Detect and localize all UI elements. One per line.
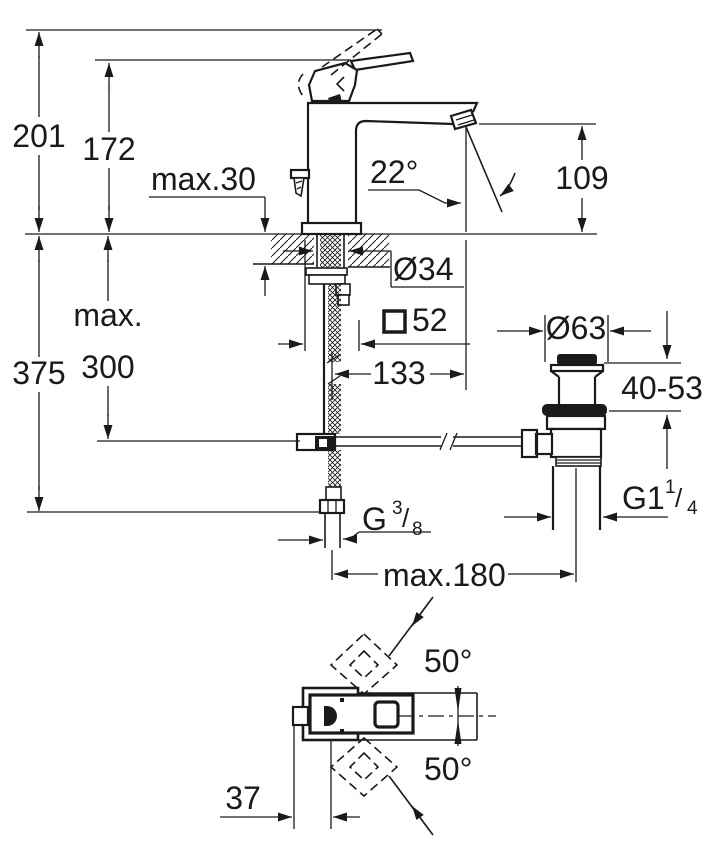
- threaded-shank: [320, 234, 341, 268]
- dim-waste-thread-slash: /: [675, 483, 683, 513]
- waste-thread-section: [556, 457, 601, 466]
- dim-supply-thread: G 3 / 8: [278, 498, 431, 540]
- dim-max-center-distance-label: max.180: [383, 557, 506, 593]
- top-view-pull-knob: [293, 707, 308, 725]
- top-view-aerator: [375, 702, 398, 727]
- dim-waste-flange-label: Ø63: [546, 310, 606, 346]
- dim-spout-height-label: 109: [555, 160, 608, 196]
- pop-up-waste-valve: [522, 354, 607, 582]
- pop-up-linkage-rod: [297, 433, 522, 450]
- water-stream: [466, 127, 515, 232]
- dim-swing-upper-label: 50°: [424, 643, 472, 679]
- dim-spout-angle-label: 22°: [370, 154, 418, 190]
- dim-swing-upper: 50°: [389, 597, 472, 679]
- dim-swing-lower-label: 50°: [424, 751, 472, 787]
- dim-lever-height-label: 172: [82, 131, 135, 167]
- side-view: 201 172 max.30 375: [12, 29, 703, 593]
- supply-hose-nut: [320, 500, 344, 513]
- dim-supply-thread-sup: 3: [392, 498, 403, 519]
- supply-hose-end: [328, 450, 341, 487]
- dim-deck-thickness-label: max.30: [151, 161, 256, 197]
- dim-waste-thread-sup: 1: [665, 477, 676, 498]
- supply-hose-upper: [328, 284, 341, 362]
- dim-deck-thickness: max.30: [149, 161, 265, 296]
- mounting-washer: [306, 268, 347, 275]
- dim-clamp-range: 40-53: [604, 311, 703, 469]
- top-view: 50° 50° 37: [220, 597, 496, 835]
- dim-supply-thread-prefix: G: [362, 501, 387, 537]
- mounting-nut: [309, 275, 345, 284]
- dim-hose-max-value: 300: [81, 349, 134, 385]
- dim-spout-reach-label: 133: [372, 355, 425, 391]
- dim-hose-max-word: max.: [73, 297, 142, 333]
- dim-waste-thread-prefix: G1: [622, 480, 665, 516]
- dim-total-height-label: 201: [12, 118, 65, 154]
- faucet-dimension-drawing: 201 172 max.30 375: [0, 0, 717, 857]
- dim-supply-length: 375: [12, 236, 320, 512]
- dim-spout-angle: 22°: [368, 154, 461, 203]
- dim-waste-thread-sub: 4: [687, 498, 698, 519]
- dim-swing-lower: 50°: [389, 751, 472, 835]
- dim-max-center-distance: max.180: [334, 557, 574, 593]
- waste-plug-cap: [557, 354, 597, 365]
- dim-body-square-label: 52: [412, 302, 448, 338]
- dim-hose-max-depth: max. 300: [73, 236, 300, 441]
- dim-clamp-range-label: 40-53: [621, 370, 703, 406]
- supply-hose-lower: [328, 384, 341, 434]
- dim-spout-height: 109: [479, 124, 609, 232]
- dim-supply-length-label: 375: [12, 355, 65, 391]
- dim-back-to-center-label: 37: [225, 780, 261, 816]
- rod-clamp-knob: [522, 430, 537, 457]
- dim-supply-thread-slash: /: [402, 503, 410, 533]
- dim-hole-diameter-label: Ø34: [393, 251, 453, 287]
- square-symbol: [384, 311, 405, 332]
- waste-gasket: [542, 404, 607, 416]
- pull-rod-knob: [291, 170, 309, 196]
- top-view-faucet: [293, 688, 496, 740]
- dim-supply-thread-sub: 8: [412, 519, 423, 540]
- base-plate: [302, 223, 361, 234]
- dimension-drawing-page: 201 172 max.30 375: [0, 0, 717, 857]
